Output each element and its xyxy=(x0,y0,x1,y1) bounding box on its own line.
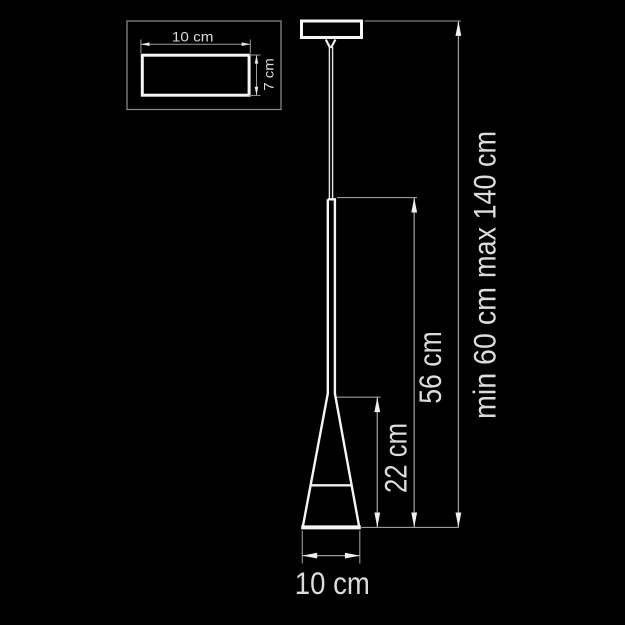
svg-text:56 cm: 56 cm xyxy=(412,331,448,404)
svg-text:max 140 cm: max 140 cm xyxy=(466,131,502,278)
svg-text:10 cm: 10 cm xyxy=(295,565,370,601)
svg-text:10 cm: 10 cm xyxy=(172,29,214,45)
svg-text:7 cm: 7 cm xyxy=(260,58,276,91)
svg-text:min 60 cm: min 60 cm xyxy=(466,287,502,419)
svg-text:22 cm: 22 cm xyxy=(377,423,413,493)
